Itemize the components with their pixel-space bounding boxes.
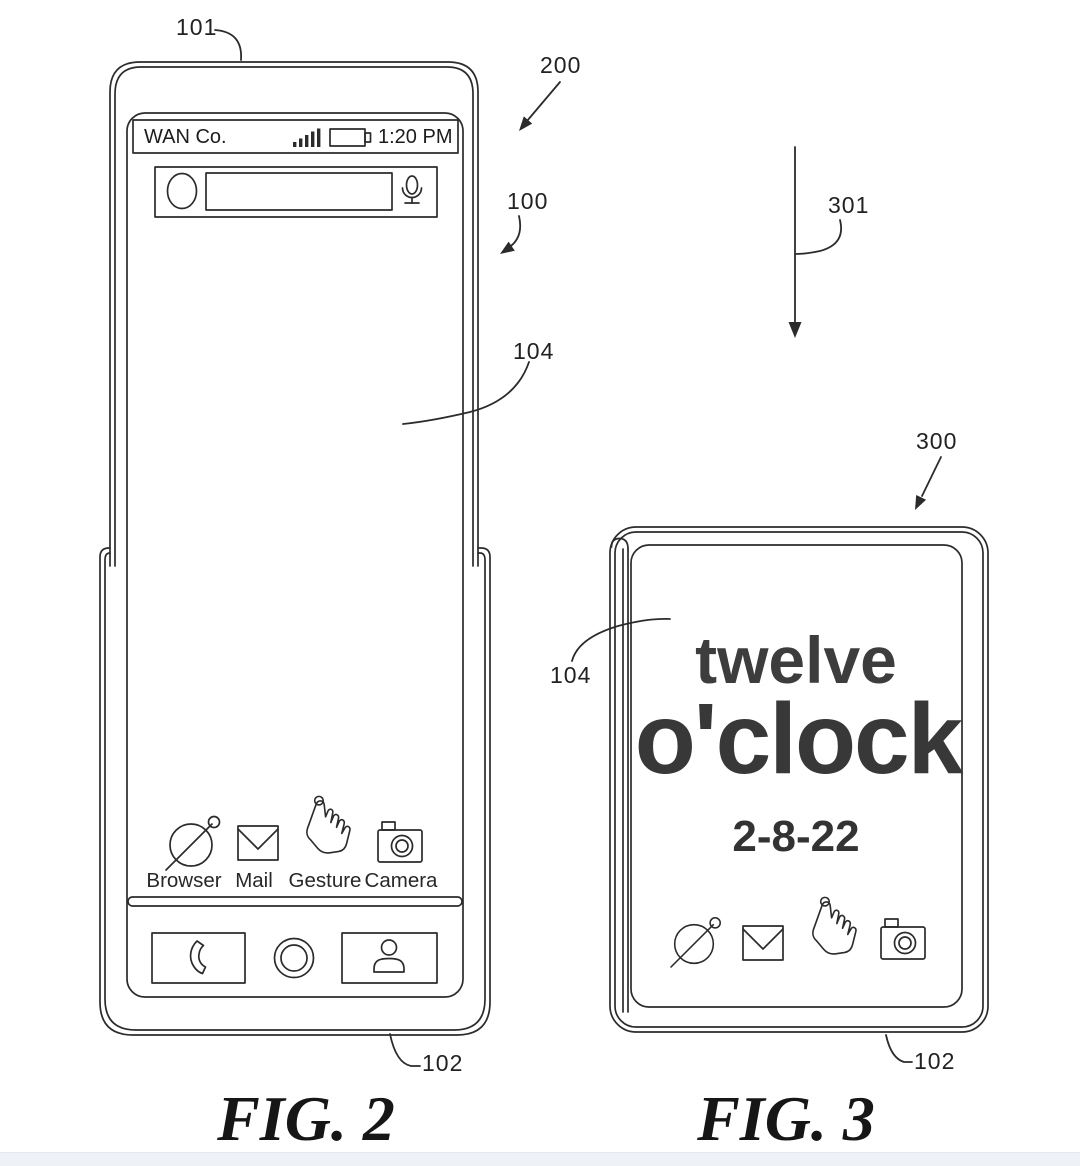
fig2-search-bar <box>155 167 437 217</box>
fig2-caption: FIG. 2 <box>217 1082 395 1156</box>
fig2-display-outline <box>127 113 463 997</box>
camera-icon <box>881 919 925 959</box>
app-label-gesture: Gesture <box>289 869 362 893</box>
ref-label-100: 100 <box>507 188 548 215</box>
search-input-box <box>206 173 392 210</box>
globe-icon <box>671 918 720 967</box>
battery-icon <box>330 129 371 146</box>
contact-person-icon <box>374 940 404 972</box>
phone-handset-icon <box>191 941 206 974</box>
fig2-nav-buttons <box>152 933 437 983</box>
ref-label-300: 300 <box>916 428 957 455</box>
app-label-camera: Camera <box>365 869 438 893</box>
fig2-lower-body-outline <box>100 548 490 1035</box>
envelope-icon <box>238 826 278 860</box>
ref-label-104-fig2: 104 <box>513 338 554 365</box>
status-time: 1:20 PM <box>378 126 452 149</box>
pointing-hand-icon <box>813 897 856 954</box>
ref-label-102-fig2: 102 <box>422 1050 463 1077</box>
home-circle-icon <box>275 939 314 978</box>
ref-label-301: 301 <box>828 192 869 219</box>
camera-icon <box>378 822 422 862</box>
ref-label-101: 101 <box>176 14 217 41</box>
envelope-icon <box>743 926 783 960</box>
signal-bars-icon <box>293 129 320 148</box>
app-label-mail: Mail <box>235 869 273 893</box>
clock-oclock-word: o'clock <box>635 682 962 797</box>
ref-label-200: 200 <box>540 52 581 79</box>
ref-label-102-fig3: 102 <box>914 1048 955 1075</box>
patent-figure-page: 101 200 100 104 102 WAN Co. 1:20 PM Brow… <box>0 0 1080 1166</box>
fig3-caption: FIG. 3 <box>697 1082 875 1156</box>
app-label-browser: Browser <box>146 869 221 893</box>
patent-line-art <box>0 0 1080 1166</box>
fig3-app-icons <box>671 897 925 967</box>
carrier-name: WAN Co. <box>144 126 227 149</box>
microphone-icon <box>403 176 422 203</box>
clock-date: 2-8-22 <box>732 812 859 862</box>
ref-label-104-fig3: 104 <box>550 662 591 689</box>
globe-icon <box>166 817 220 871</box>
avatar-circle-icon <box>168 174 197 209</box>
page-bottom-strip <box>0 1152 1080 1166</box>
pointing-hand-icon <box>307 796 350 853</box>
dock-divider <box>128 897 462 906</box>
fig2-reference-leaders <box>215 30 560 1066</box>
fig2-app-icons <box>166 796 422 870</box>
